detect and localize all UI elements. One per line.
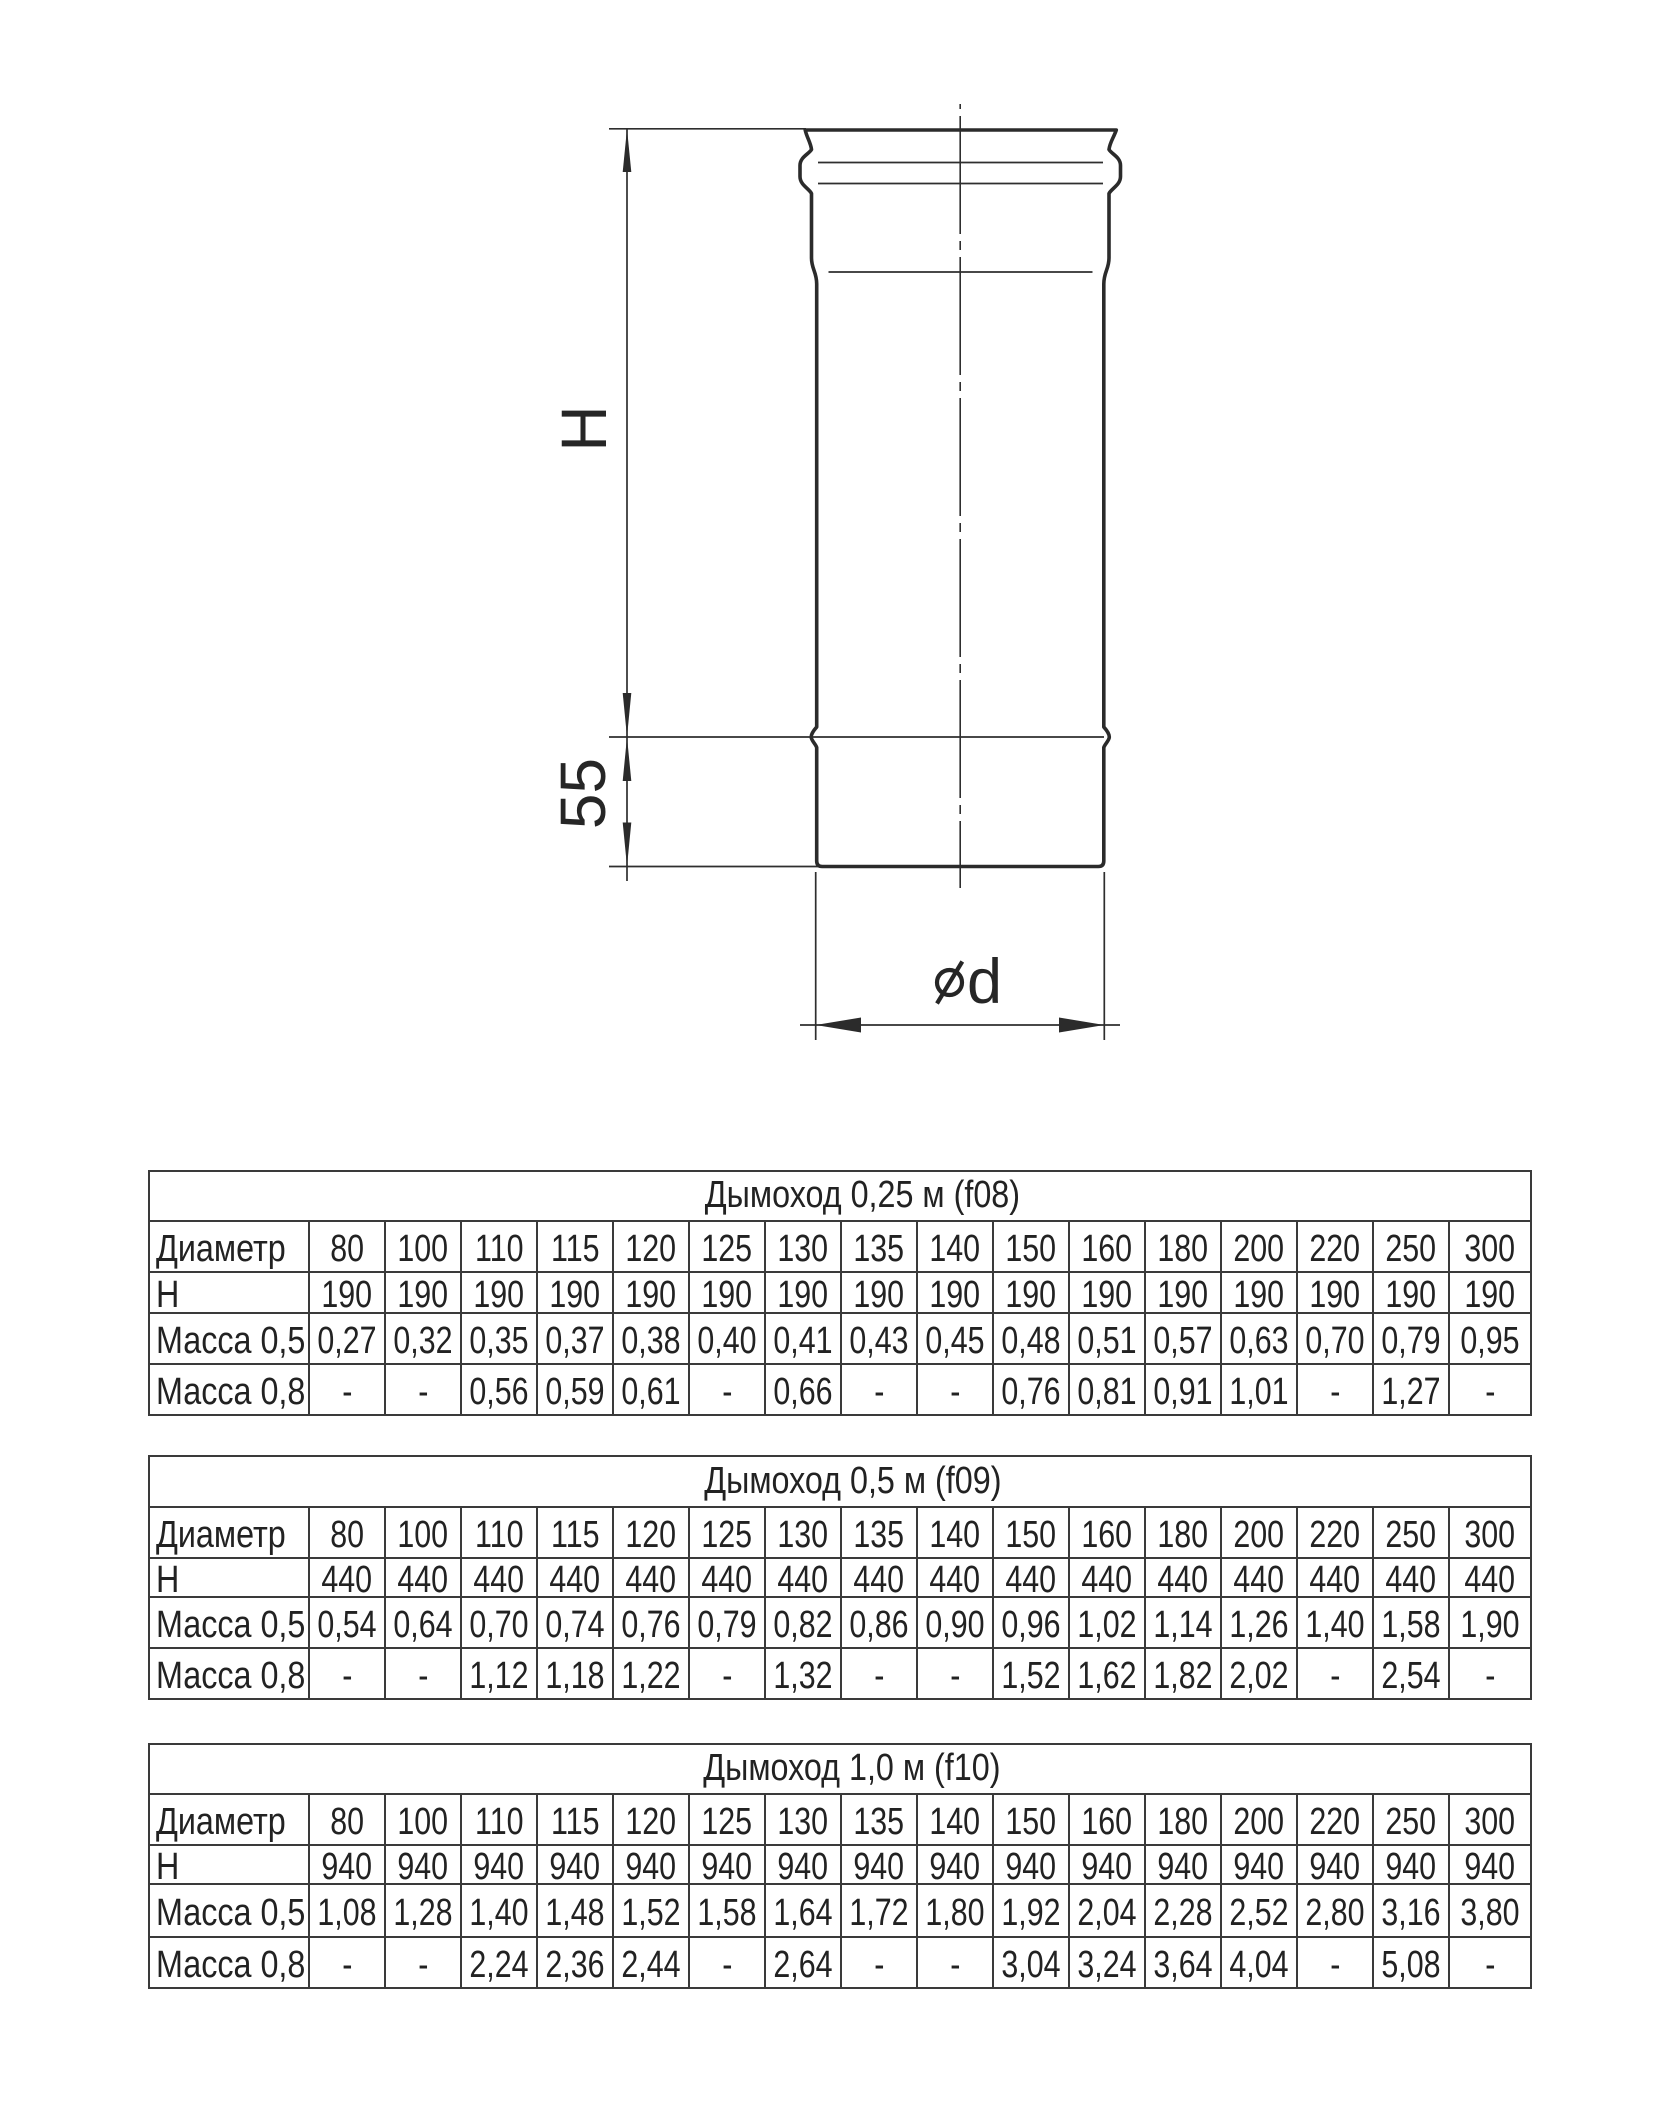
svg-text:H: H [548, 405, 620, 451]
svg-text:d: d [967, 947, 1002, 1017]
svg-text:55: 55 [547, 758, 619, 829]
